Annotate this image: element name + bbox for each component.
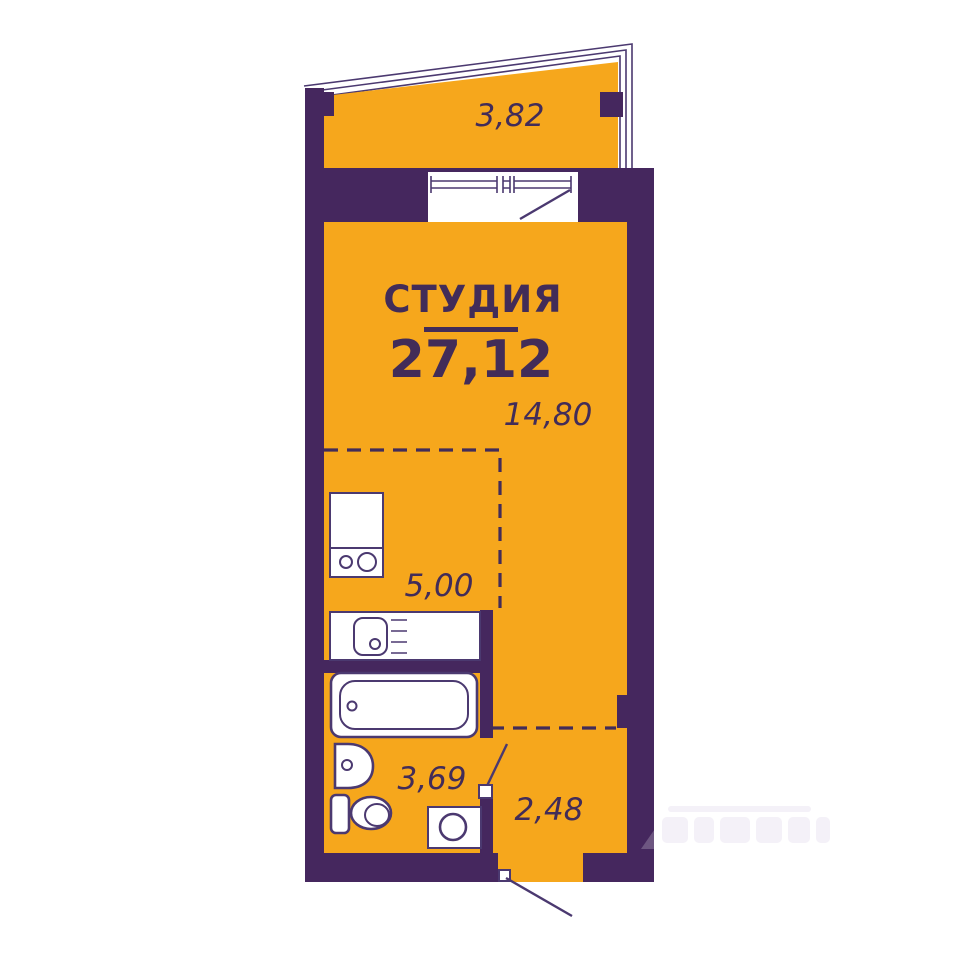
right-wall-pier bbox=[617, 695, 627, 728]
floor-plan-drawing: 3,82 bbox=[0, 0, 960, 960]
kitchen-sink-icon bbox=[330, 612, 480, 660]
bathroom-right-wall-upper bbox=[480, 610, 493, 738]
stove-icon bbox=[330, 548, 383, 577]
kitchen-counter-icon bbox=[330, 493, 383, 548]
balcony: 3,82 bbox=[304, 44, 632, 168]
bathroom-area-label: 3,69 bbox=[397, 761, 466, 797]
balcony-window-unit bbox=[428, 172, 578, 222]
living-area-label: 14,80 bbox=[504, 397, 593, 433]
balcony-area-label: 3,82 bbox=[475, 98, 544, 134]
bottom-wall-right bbox=[583, 853, 654, 882]
total-area-label: 27,12 bbox=[389, 330, 553, 390]
bathtub-icon bbox=[331, 673, 477, 737]
kitchen-area-label: 5,00 bbox=[404, 568, 473, 604]
washbasin-icon bbox=[335, 744, 373, 788]
hallway-area-label: 2,48 bbox=[514, 792, 583, 828]
toilet-icon bbox=[331, 795, 391, 833]
watermark bbox=[641, 806, 830, 849]
balcony-right-pier bbox=[600, 92, 623, 117]
balcony-left-pier bbox=[324, 92, 334, 116]
washing-machine-icon bbox=[428, 807, 481, 848]
bathroom-top-wall bbox=[324, 660, 480, 673]
floor-plan: 3,82 bbox=[0, 0, 960, 960]
room-title-label: СТУДИЯ bbox=[383, 278, 562, 321]
right-wall bbox=[627, 168, 654, 882]
bottom-wall-left bbox=[305, 853, 498, 882]
